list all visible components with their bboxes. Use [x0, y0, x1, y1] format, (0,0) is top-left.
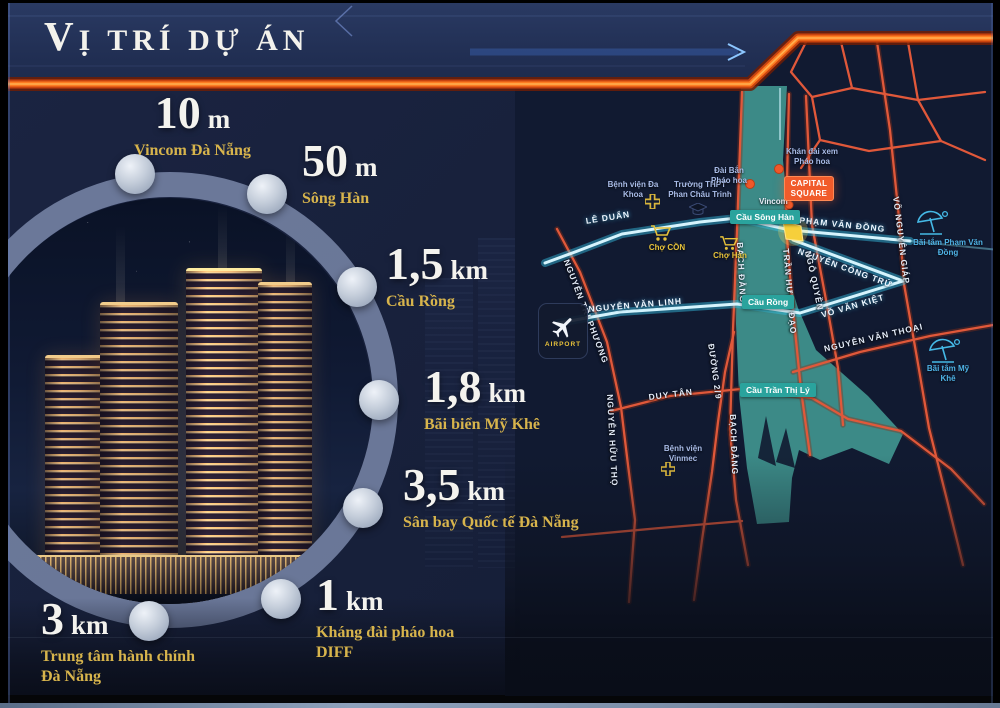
distance-label: Vincom Đà Nẵng	[120, 141, 265, 161]
callout-cau-rong: 1,5km Cầu Rồng	[386, 241, 488, 312]
distance-label: Cầu Rồng	[386, 292, 488, 312]
header-chevron	[336, 6, 352, 36]
tower	[100, 302, 178, 588]
distance-label: Sân bay Quốc tế Đà Nẵng	[403, 513, 579, 533]
distance-unit: km	[346, 586, 384, 616]
airport-badge: AIRPORT	[538, 303, 588, 359]
distance-value: 10	[155, 87, 201, 138]
callout-my-khe: 1,8km Bãi biển Mỹ Khê	[424, 364, 540, 435]
frame-edge-top	[0, 0, 1000, 3]
distance-unit: km	[71, 610, 109, 640]
frame-edge-right	[993, 0, 1000, 708]
distance-label: Sông Hàn	[302, 189, 378, 209]
ring-dot-50m	[247, 174, 287, 214]
frame-edge-left	[0, 0, 8, 708]
ring-dot-1km	[261, 579, 301, 619]
hospital-cross-icon	[645, 194, 660, 209]
tower	[186, 268, 262, 588]
distance-value: 1,5	[386, 238, 444, 289]
callout-vincom: 10m Vincom Đà Nẵng	[120, 90, 265, 161]
distance-value: 1	[316, 569, 339, 620]
tower	[258, 282, 312, 578]
graduation-cap-icon	[689, 203, 707, 217]
callout-song-han: 50m Sông Hàn	[302, 138, 378, 209]
shopping-cart-icon	[719, 236, 739, 251]
ring-dot-1-8km	[359, 380, 399, 420]
bridge-badge-song-han: Cầu Sông Hàn	[730, 210, 800, 224]
distance-label: Trung tâm hành chính Đà Nẵng	[41, 647, 216, 687]
capital-square-badge: CAPITAL SQUARE	[784, 176, 834, 201]
distance-unit: m	[208, 104, 231, 134]
callout-diff: 1km Kháng đài pháo hoa DIFF	[316, 572, 476, 663]
poi-cho-han: Chợ Hàn	[704, 251, 756, 261]
tower	[45, 355, 105, 588]
beach-umbrella-icon	[928, 336, 962, 366]
distance-value: 3	[41, 593, 64, 644]
poi-khan-dai: Khán đài xem Pháo hoa	[781, 147, 843, 167]
poi-benh-vien-vinmec: Bệnh viện Vinmec	[655, 444, 711, 464]
distance-label: Kháng đài pháo hoa DIFF	[316, 623, 476, 663]
distance-unit: km	[489, 378, 527, 408]
shopping-cart-icon	[650, 225, 672, 242]
distance-unit: km	[451, 255, 489, 285]
callout-admin-center: 3km Trung tâm hành chính Đà Nẵng	[41, 596, 216, 687]
poi-bai-tam-my-khe: Bãi tắm Mỹ Khê	[920, 364, 976, 384]
poi-cho-con: Chợ CỒN	[638, 243, 696, 253]
frame-edge-bottom-light	[0, 703, 1000, 708]
poi-dai-ban-phao-hoa: Đài Bắn Pháo hoa	[706, 166, 752, 186]
poi-bai-tam-pham-van-dong: Bãi tắm Phạm Văn Đồng	[908, 238, 988, 258]
hospital-cross-icon	[661, 462, 675, 476]
callout-airport: 3,5km Sân bay Quốc tế Đà Nẵng	[403, 462, 579, 533]
distance-value: 1,8	[424, 361, 482, 412]
bridge-badge-cau-rong: Cầu Rồng	[742, 295, 794, 309]
distance-label: Bãi biển Mỹ Khê	[424, 415, 540, 435]
street-label-bach-dang-south: BẠCH ĐẰNG	[728, 414, 740, 475]
ring-dot-3-5km	[343, 488, 383, 528]
distance-unit: m	[355, 152, 378, 182]
beach-umbrella-icon	[916, 208, 950, 238]
distance-unit: km	[468, 476, 506, 506]
location-infographic: VỊ TRÍ DỰ ÁN	[0, 0, 1000, 708]
distance-value: 3,5	[403, 459, 461, 510]
distance-value: 50	[302, 135, 348, 186]
ring-dot-1-5km	[337, 267, 377, 307]
bridge-badge-tran-thi-ly: Cầu Trần Thị Lý	[740, 383, 816, 397]
airplane-icon	[546, 309, 580, 343]
